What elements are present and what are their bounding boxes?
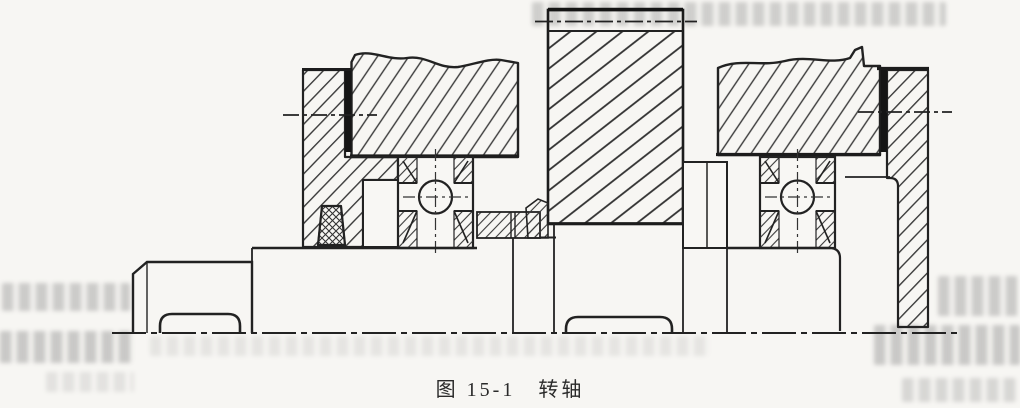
right-slinger-ring [683, 162, 727, 248]
hub-keyway [566, 317, 672, 333]
left-housing-block [350, 53, 519, 157]
left-keyway [160, 314, 240, 333]
gear-hub [535, 10, 697, 225]
left-shaft-spacer-rings [477, 199, 548, 238]
left-felt-seal [318, 206, 345, 245]
right-housing-block [716, 47, 881, 155]
left-cap-joint-slot [345, 71, 352, 152]
scanned-page: 图 15-1 转轴 [0, 0, 1020, 408]
left-seal-spacer-ring [363, 180, 398, 247]
figure-caption-text: 图 15-1 转轴 [436, 379, 585, 401]
left-ball-bearing [398, 149, 473, 257]
right-cap-joint-slot [881, 70, 888, 152]
technical-drawing-rotating-shaft [0, 0, 1020, 408]
right-ball-bearing [760, 149, 835, 257]
figure-caption: 图 15-1 转轴 [0, 373, 1020, 402]
